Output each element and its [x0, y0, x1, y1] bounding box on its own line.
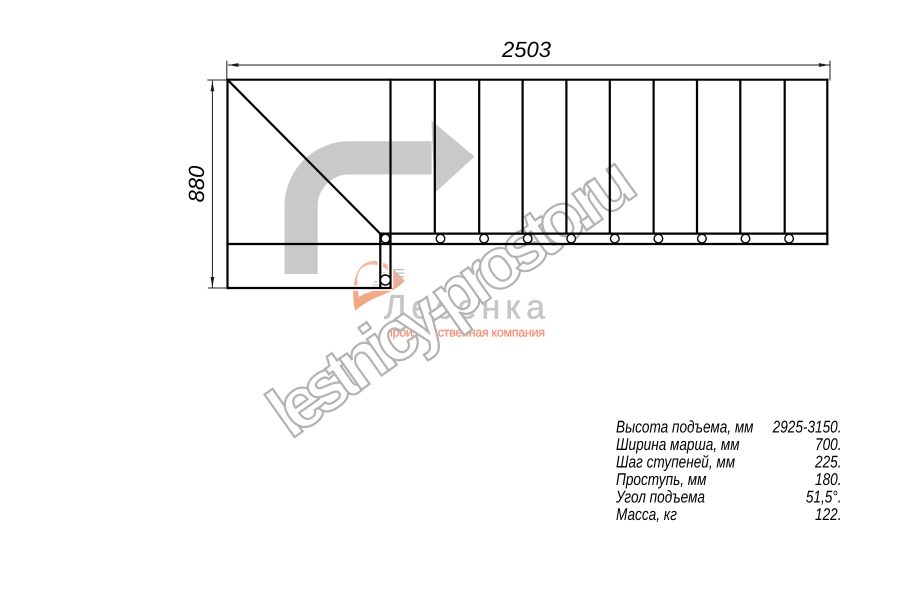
- svg-text:51,5°.: 51,5°.: [806, 488, 842, 507]
- svg-text:2925-3150.: 2925-3150.: [772, 418, 842, 437]
- svg-text:880: 880: [184, 165, 209, 202]
- svg-text:Масса, кг: Масса, кг: [616, 505, 677, 524]
- svg-text:Шаг ступеней, мм: Шаг ступеней, мм: [616, 453, 735, 472]
- svg-text:122.: 122.: [815, 505, 841, 524]
- svg-text:Угол подъема: Угол подъема: [615, 488, 705, 507]
- svg-text:225.: 225.: [814, 453, 841, 472]
- svg-text:700.: 700.: [815, 435, 841, 454]
- svg-text:2503: 2503: [501, 37, 552, 62]
- svg-text:Проступь, мм: Проступь, мм: [616, 470, 707, 489]
- svg-text:Высота подъема, мм: Высота подъема, мм: [616, 418, 754, 437]
- svg-text:180.: 180.: [815, 470, 841, 489]
- svg-text:Ширина марша, мм: Ширина марша, мм: [616, 435, 740, 454]
